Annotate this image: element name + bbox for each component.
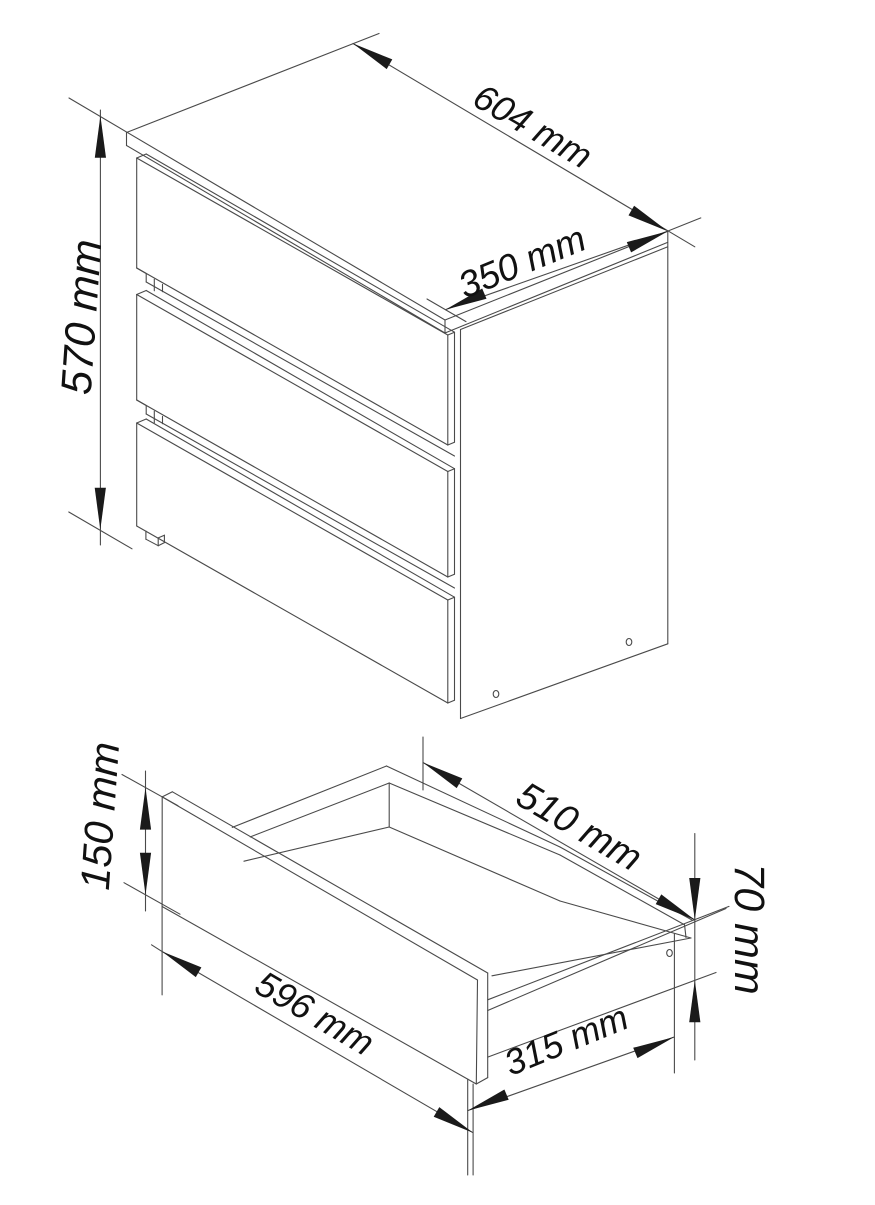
svg-text:70 mm: 70 mm <box>725 863 773 994</box>
